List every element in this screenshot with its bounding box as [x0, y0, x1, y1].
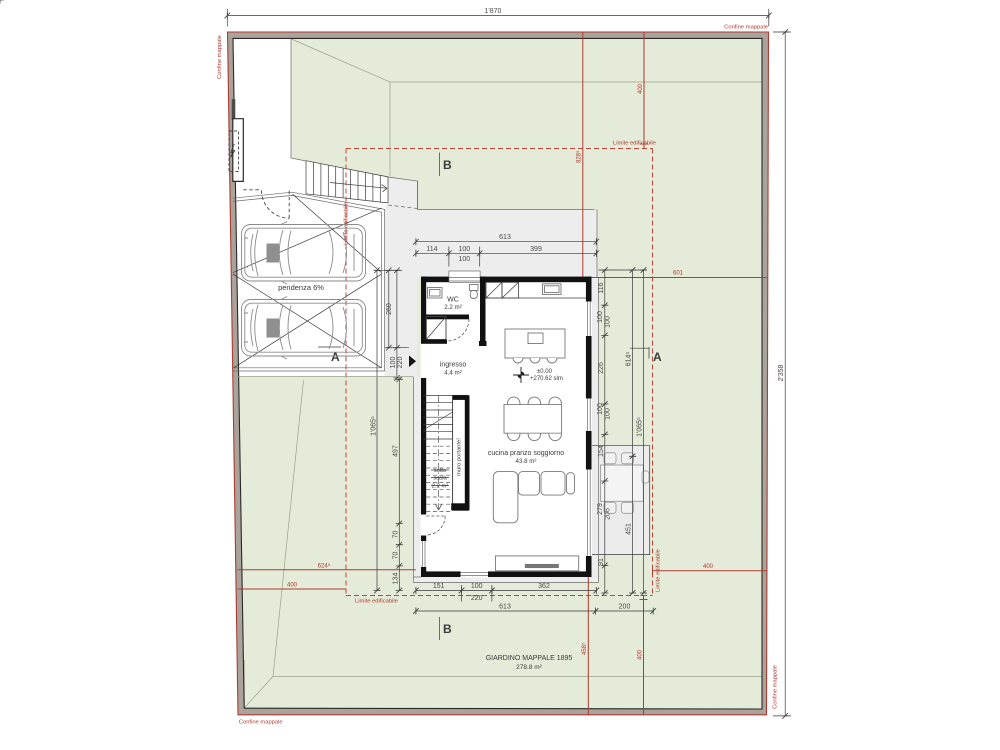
svg-text:B: B [443, 158, 452, 172]
svg-text:601: 601 [673, 271, 684, 277]
svg-text:Limite edificabile: Limite edificabile [613, 141, 656, 147]
svg-text:151: 151 [433, 583, 445, 590]
svg-text:399: 399 [530, 246, 542, 253]
svg-text:458⁵: 458⁵ [581, 642, 588, 655]
svg-text:Limite edificabile: Limite edificabile [355, 599, 398, 605]
svg-text:613: 613 [499, 234, 511, 241]
svg-text:scala: scala [433, 476, 447, 482]
svg-text:2.2 m²: 2.2 m² [444, 304, 462, 311]
svg-text:400: 400 [638, 83, 644, 94]
svg-text:100: 100 [597, 311, 604, 323]
svg-text:2'358: 2'358 [778, 364, 785, 381]
svg-text:116: 116 [598, 282, 605, 293]
svg-text:100: 100 [605, 408, 612, 420]
svg-text:Limite edificabile: Limite edificabile [344, 202, 350, 245]
svg-text:2.2 m²: 2.2 m² [432, 484, 448, 490]
svg-text:362: 362 [538, 583, 550, 590]
svg-text:Confine mappale: Confine mappale [724, 25, 768, 31]
svg-text:pendenza 6%: pendenza 6% [278, 283, 324, 292]
svg-text:Confine mappale: Confine mappale [239, 720, 283, 726]
svg-text:43.8 m²: 43.8 m² [516, 458, 537, 465]
svg-text:451: 451 [626, 523, 633, 535]
svg-text:114: 114 [426, 246, 437, 253]
svg-text:1'065⁵: 1'065⁵ [637, 417, 644, 437]
svg-text:B: B [443, 622, 452, 636]
svg-text:GIARDINO MAPPALE 1895: GIARDINO MAPPALE 1895 [486, 655, 573, 662]
svg-text:4.4 m²: 4.4 m² [444, 370, 462, 377]
svg-text:220: 220 [471, 595, 483, 602]
svg-text:279: 279 [597, 503, 604, 515]
svg-text:400: 400 [287, 582, 298, 588]
svg-text:613: 613 [499, 604, 511, 611]
svg-text:1'065⁵: 1'065⁵ [371, 416, 378, 436]
svg-text:154: 154 [598, 445, 605, 457]
svg-text:100: 100 [597, 403, 604, 415]
svg-text:614⁵: 614⁵ [626, 352, 633, 367]
svg-text:134: 134 [392, 573, 399, 585]
svg-text:±0.00: ±0.00 [537, 369, 553, 375]
svg-text:WC: WC [447, 297, 459, 304]
svg-text:100: 100 [458, 246, 470, 253]
svg-text:226: 226 [598, 362, 605, 374]
svg-text:206: 206 [605, 508, 612, 520]
svg-text:828⁵: 828⁵ [576, 150, 583, 163]
svg-text:100: 100 [605, 316, 612, 328]
svg-text:70: 70 [392, 552, 399, 560]
svg-text:70: 70 [392, 531, 399, 539]
svg-text:400: 400 [703, 564, 714, 570]
svg-text:624⁵: 624⁵ [318, 562, 331, 569]
svg-text:+270.62 slm: +270.62 slm [530, 376, 563, 382]
svg-text:400: 400 [638, 649, 644, 660]
svg-text:260: 260 [386, 303, 393, 315]
svg-text:Confine mappale: Confine mappale [773, 665, 779, 709]
svg-text:278.8 m²: 278.8 m² [516, 664, 542, 671]
svg-text:Confine mappale: Confine mappale [217, 35, 223, 79]
svg-text:100: 100 [390, 357, 397, 369]
svg-text:A: A [653, 350, 662, 364]
svg-text:497: 497 [392, 445, 399, 457]
svg-text:cucina pranzo soggiorno: cucina pranzo soggiorno [488, 450, 564, 457]
svg-text:muro portante!: muro portante! [457, 438, 463, 476]
svg-text:91: 91 [598, 558, 605, 566]
svg-text:ingresso: ingresso [440, 362, 467, 369]
svg-text:1'870: 1'870 [485, 8, 502, 15]
svg-text:200: 200 [619, 604, 631, 611]
svg-text:220: 220 [397, 357, 404, 369]
svg-text:100: 100 [471, 583, 483, 590]
svg-text:sotto: sotto [434, 468, 447, 474]
svg-text:100: 100 [458, 256, 470, 263]
